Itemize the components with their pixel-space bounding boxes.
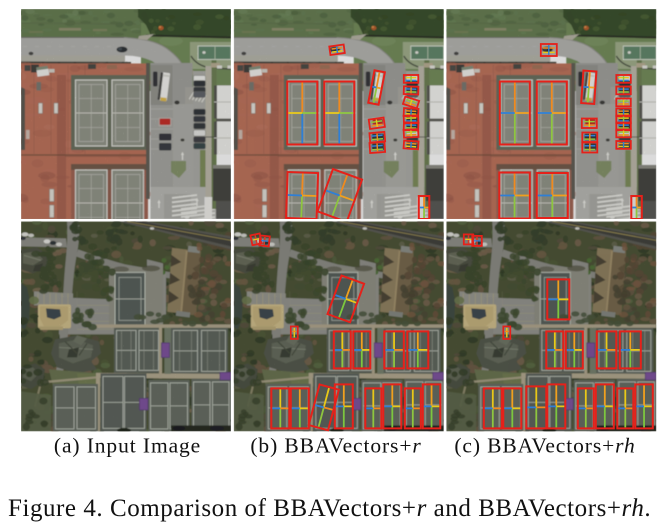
svg-text:(a) Input Image: (a) Input Image (54, 434, 201, 458)
svg-text:(b) BBAVectors+r: (b) BBAVectors+r (250, 434, 421, 458)
svg-text:(c) BBAVectors+rh: (c) BBAVectors+rh (454, 434, 635, 458)
svg-text:Figure 4. Comparison of BBAVec: Figure 4. Comparison of BBAVectors+r and… (8, 495, 651, 522)
